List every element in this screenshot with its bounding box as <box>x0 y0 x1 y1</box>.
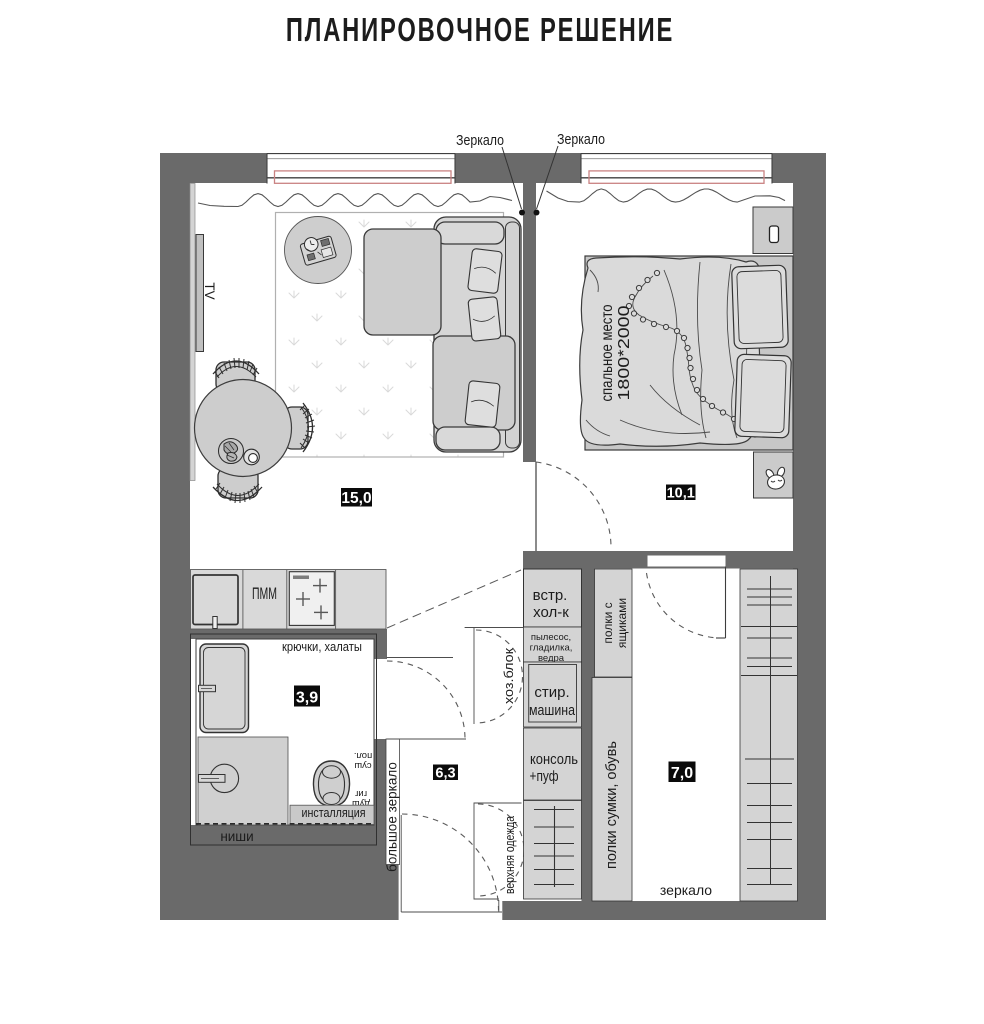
svg-text:ящиками: ящиками <box>615 598 629 648</box>
svg-text:гладилка,: гладилка, <box>530 643 573 654</box>
svg-text:верхняя одежда: верхняя одежда <box>503 816 517 894</box>
svg-text:консоль: консоль <box>530 751 578 768</box>
svg-text:ниши: ниши <box>220 829 253 844</box>
svg-text:машина: машина <box>529 702 576 719</box>
svg-text:пылесос,: пылесос, <box>531 632 571 643</box>
svg-text:полки с: полки с <box>601 602 615 643</box>
svg-text:суш: суш <box>354 760 371 771</box>
svg-text:7,0: 7,0 <box>671 765 693 782</box>
svg-text:встр.: встр. <box>533 587 568 604</box>
svg-text:хоз.блок: хоз.блок <box>501 648 516 704</box>
svg-text:+пуф: +пуф <box>530 768 559 785</box>
svg-text:1800*2000: 1800*2000 <box>616 305 633 400</box>
svg-text:TV: TV <box>202 282 217 299</box>
svg-text:10,1: 10,1 <box>667 486 695 502</box>
svg-text:Зеркало: Зеркало <box>456 133 504 149</box>
svg-text:спальное место: спальное место <box>599 304 616 401</box>
svg-text:Зеркало: Зеркало <box>557 132 605 148</box>
svg-text:полки сумки, обувь: полки сумки, обувь <box>604 741 620 869</box>
svg-text:хол-к: хол-к <box>533 604 569 621</box>
svg-text:ПММ: ПММ <box>252 584 277 603</box>
svg-text:крючки, халаты: крючки, халаты <box>282 640 362 654</box>
svg-text:зеркало: зеркало <box>660 882 712 898</box>
svg-text:инсталляция: инсталляция <box>302 806 366 820</box>
svg-text:большое зеркало: большое зеркало <box>385 762 400 872</box>
svg-text:стир.: стир. <box>534 684 569 701</box>
svg-text:3,9: 3,9 <box>296 689 318 706</box>
svg-text:ПЛАНИРОВОЧНОЕ РЕШЕНИЕ: ПЛАНИРОВОЧНОЕ РЕШЕНИЕ <box>286 12 674 49</box>
svg-text:пол.: пол. <box>354 750 372 761</box>
svg-text:15,0: 15,0 <box>341 490 371 507</box>
svg-text:6,3: 6,3 <box>435 765 455 781</box>
svg-text:гиг: гиг <box>354 788 367 799</box>
